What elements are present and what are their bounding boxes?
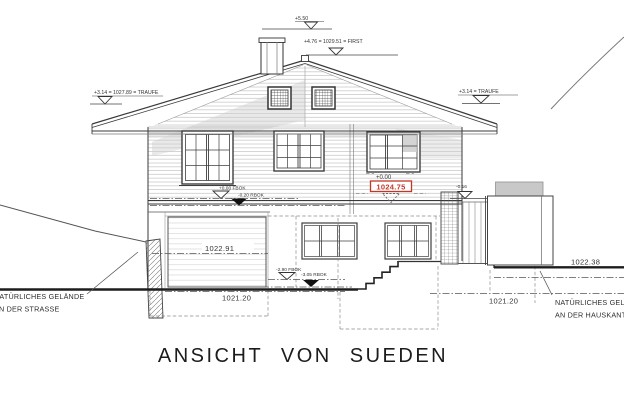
- level-label: -0.16: [456, 184, 467, 190]
- annex-slab: [496, 182, 544, 196]
- window-upper-left: [179, 131, 236, 186]
- window-upper-middle: [274, 131, 324, 171]
- window-upper-right: [367, 132, 420, 172]
- chimney: [259, 38, 285, 74]
- lattice-icon: [271, 90, 288, 106]
- ridge-cap: [302, 56, 309, 62]
- note-right-line2: AN DER HAUSKANTE: [555, 311, 624, 320]
- elevation-drawing-page: +5.50 +4.76 = 1029.51 = FIRST +3.14 = 10…: [0, 0, 624, 412]
- south-elevation-drawing: +5.50 +4.76 = 1029.51 = FIRST +3.14 = 10…: [0, 0, 624, 412]
- note-left-line1: NATÜRLICHES GELÄNDE: [0, 292, 84, 301]
- chimney-cap: [259, 38, 285, 43]
- lattice-icon: [315, 90, 332, 106]
- level-label: +4.76 = 1029.51 = FIRST: [304, 39, 364, 45]
- window-lower-right: [385, 223, 431, 259]
- level-label: 1021.20: [489, 297, 518, 306]
- level-label: +3.14 = 1027.89 = TRAUFE: [94, 90, 159, 96]
- level-label: -0.20 RBOK: [238, 193, 265, 199]
- note-right-line1: NATÜRLICHES GELÄNDE: [555, 298, 624, 307]
- level-label: +5.50: [295, 16, 308, 22]
- note-left-line2: AN DER STRASSE: [0, 305, 60, 314]
- level-label: +0.00: [376, 175, 392, 181]
- annex: [486, 182, 554, 265]
- level-label: 1022.38: [571, 258, 600, 267]
- marker-ground-right: 1022.38: [571, 258, 600, 267]
- level-label: 1022.91: [205, 244, 234, 253]
- level-label: -3.05 RBOK: [301, 272, 328, 278]
- hatched-pier: [441, 192, 458, 264]
- retaining-wall: [146, 239, 163, 318]
- level-label: 1021.20: [222, 294, 251, 303]
- level-label: +3.14 = TRAUFE: [459, 89, 499, 95]
- drawing-title: ANSICHT VON SUEDEN: [158, 345, 448, 367]
- absolute-level-value: 1024.75: [376, 183, 405, 192]
- window-lower-left: [302, 223, 357, 259]
